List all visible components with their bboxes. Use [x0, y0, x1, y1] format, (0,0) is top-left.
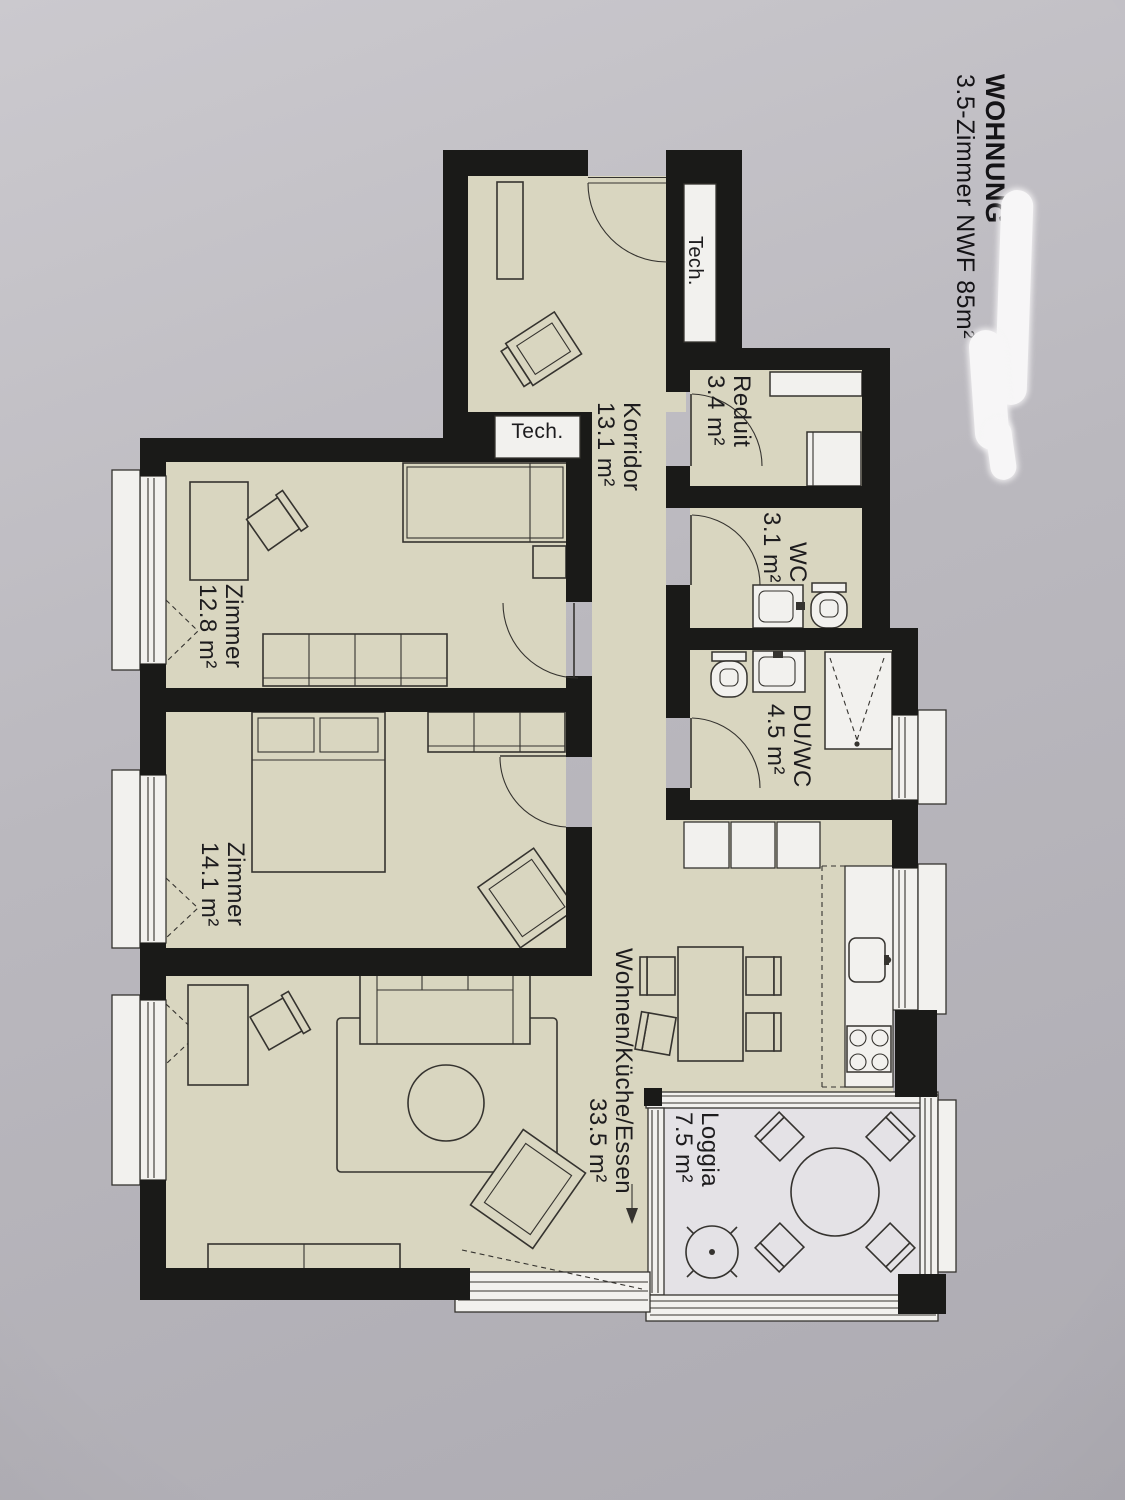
window-sill-zimmer2 [112, 770, 140, 948]
basin-faucet [796, 602, 805, 610]
room-name: Zimmer [220, 584, 246, 669]
washing-machine [807, 432, 861, 486]
room-label-zimmer1: Zimmer 12.8 m² [194, 584, 246, 669]
room-area: 33.5 m² [584, 948, 610, 1194]
shower [825, 652, 892, 749]
stove [847, 1026, 891, 1072]
tech-shaft-label: Tech. [495, 420, 580, 444]
room-name: WC [784, 512, 810, 583]
basin-faucet [773, 651, 783, 658]
loggia-window-sill-right [938, 1100, 956, 1272]
room-area: 13.1 m² [592, 402, 618, 491]
toilet-bowl [711, 661, 747, 697]
room-name: DU/WC [788, 704, 814, 788]
toilet-tank [712, 652, 746, 661]
room-name: Reduit [728, 375, 754, 447]
desk [190, 482, 248, 580]
room-name: Zimmer [222, 842, 248, 927]
desk [188, 985, 248, 1085]
shower-drain [854, 741, 859, 746]
dining-chair [635, 1012, 676, 1056]
room-label-wc: WC 3.1 m² [758, 512, 810, 583]
room-name: Korridor [618, 402, 644, 491]
room-area: 12.8 m² [194, 584, 220, 669]
window-sill-duwc [918, 710, 946, 804]
room-area: 7.5 m² [670, 1112, 696, 1187]
loggia-table [791, 1148, 879, 1236]
entry-wardrobe [497, 182, 523, 279]
window-zimmer1 [140, 476, 166, 664]
window-living [140, 1000, 166, 1180]
window-sill-kitchen [918, 864, 946, 1014]
nightstand [533, 546, 566, 578]
kitchen-tall-cabinet [731, 822, 775, 868]
toilet-bowl [811, 592, 847, 628]
dining-chair [640, 957, 675, 995]
room-label-loggia: Loggia 7.5 m² [670, 1112, 722, 1187]
loggia-glazing-top [646, 1092, 938, 1108]
dining-chair [746, 957, 781, 995]
tech-niche-label: Tech. [683, 236, 707, 286]
photographed-floor-plan: WOHNUNG 3.5-Zimmer NWF 85m² Korridor 13.… [0, 0, 1125, 1500]
wc-fixtures [753, 583, 847, 628]
toilet-tank [812, 583, 846, 592]
room-area: 3.1 m² [758, 512, 784, 583]
window-zimmer2 [140, 775, 166, 943]
dining-table [678, 947, 743, 1061]
apartment-subtitle: 3.5-Zimmer NWF 85m² [950, 74, 980, 339]
loggia-glazing-left [648, 1108, 664, 1295]
sofa [360, 970, 530, 1044]
window-sill-zimmer1 [112, 470, 140, 670]
room-name: Loggia [696, 1112, 722, 1187]
room-area: 4.5 m² [762, 704, 788, 788]
kitchen-sink [849, 938, 885, 982]
room-label-zimmer2: Zimmer 14.1 m² [196, 842, 248, 927]
sliding-door-glazing [455, 1272, 650, 1312]
room-area: 3.4 m² [702, 375, 728, 447]
room-label-wohnen: Wohnen/Küche/Essen 33.5 m² [584, 948, 636, 1194]
bed-double [252, 712, 385, 872]
room-label-duwc: DU/WC 4.5 m² [762, 704, 814, 788]
room-name: Wohnen/Küche/Essen [610, 948, 636, 1194]
kitchen-tall-cabinet [684, 822, 729, 868]
dining-chair [746, 1013, 781, 1051]
loggia-glazing-right [920, 1095, 938, 1295]
shelf [770, 372, 862, 396]
room-area: 14.1 m² [196, 842, 222, 927]
room-label-korridor: Korridor 13.1 m² [592, 402, 644, 491]
window-sill-living [112, 995, 140, 1185]
kitchen-tall-cabinet [777, 822, 820, 868]
room-label-reduit: Reduit 3.4 m² [702, 375, 754, 447]
kitchen-faucet-knob [885, 957, 891, 963]
bed-single [403, 463, 567, 542]
